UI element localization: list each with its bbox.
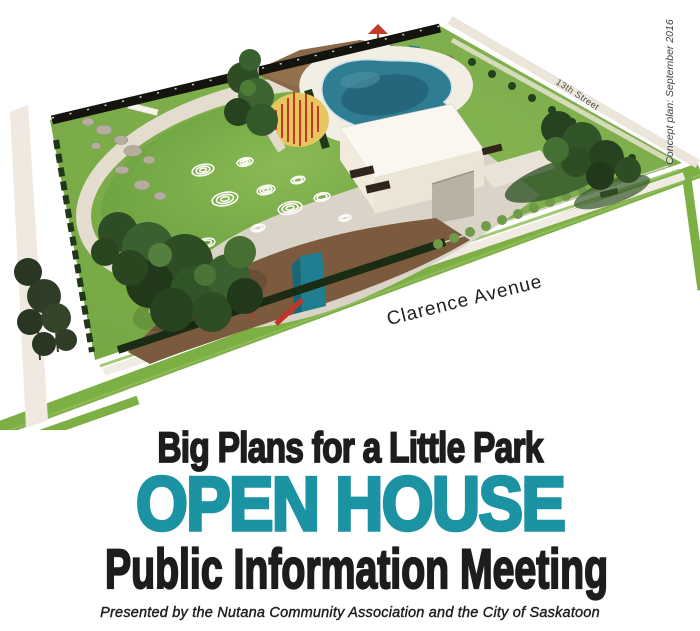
concept-plan-caption: Concept plan: September 2016 bbox=[664, 19, 676, 165]
poster-root: Clarence Avenue 13th Street Concept plan… bbox=[0, 0, 700, 631]
title-block: Big Plans for a Little Park OPEN HOUSE P… bbox=[0, 427, 700, 623]
subtitle-text: Public Information Meeting bbox=[105, 540, 595, 598]
presented-by-text: Presented by the Nutana Community Associ… bbox=[0, 605, 700, 622]
open-house-title: OPEN HOUSE bbox=[42, 470, 658, 540]
park-concept-rendering: Clarence Avenue 13th Street Concept plan… bbox=[0, 0, 700, 430]
